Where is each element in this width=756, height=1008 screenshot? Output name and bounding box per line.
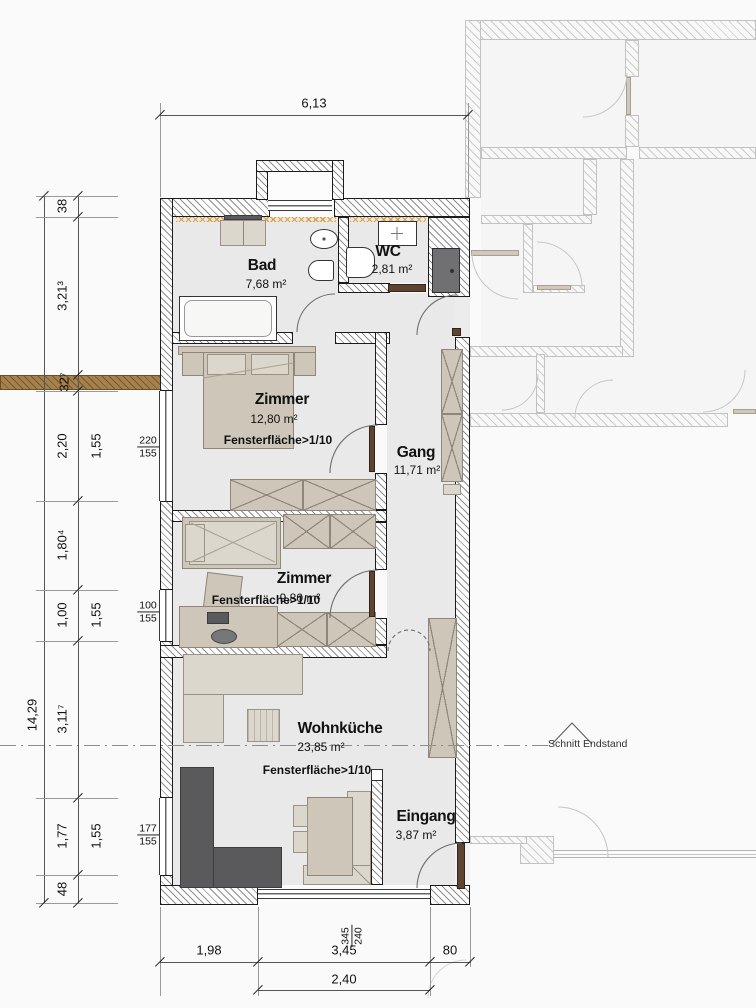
dim-left-total: 14,29	[25, 699, 40, 732]
wardrobe-zimmer1	[230, 479, 303, 511]
faded-corridor-floor	[470, 357, 728, 413]
faded-wall	[625, 40, 639, 77]
dim-line-bottom-2	[258, 990, 430, 991]
dim-left-321: 3,21³	[55, 281, 70, 311]
room-area-wohnkueche: 23,85 m²	[297, 740, 344, 754]
chair	[293, 805, 308, 827]
wall-top-right	[334, 198, 470, 217]
wardrobe-zimmer2-bottom	[327, 612, 376, 647]
bay-wall-top	[256, 160, 344, 172]
dim-top-width: 6,13	[301, 96, 326, 111]
faded-door-leaf	[471, 250, 519, 256]
wall-left-1	[160, 198, 173, 391]
faded-wall	[523, 224, 533, 293]
wall-gang-1	[375, 332, 387, 425]
pillow	[207, 354, 246, 375]
wall-gang-2	[375, 473, 387, 510]
room-area-wc: 2,81 m²	[372, 262, 413, 276]
window-sill: 155	[137, 613, 159, 625]
window-sill: 155	[137, 448, 159, 460]
faded-curve	[428, 960, 466, 998]
pillow	[251, 354, 289, 375]
dim-left-311: 3,11⁷	[55, 704, 70, 733]
room-label-eingang: Eingang	[396, 808, 455, 826]
extension-line	[430, 907, 431, 996]
dim-left-32: 32⁷	[57, 372, 72, 391]
faded-door-leaf	[626, 77, 631, 115]
faded-wall	[481, 215, 592, 224]
towel-rail	[224, 215, 262, 220]
faded-door-leaf	[537, 285, 571, 290]
chair	[293, 831, 308, 853]
room-note-zimmer1: Fensterfläche>1/10	[224, 433, 332, 447]
dim-left-100: 1,00	[55, 602, 70, 627]
dim-sill-2: 1,55	[89, 602, 104, 627]
dim-line-top	[160, 115, 469, 116]
entrance-door-leaf	[457, 843, 465, 889]
sofa-top	[183, 654, 303, 695]
wardrobe-zimmer2-top	[330, 514, 376, 549]
dim-bottom-345: 3,45	[331, 943, 356, 958]
wardrobe-zimmer2-top	[283, 514, 330, 549]
faded-sill	[470, 836, 527, 844]
dining-table	[307, 797, 353, 876]
faded-wall	[625, 115, 639, 147]
window-wohnkueche-south	[258, 889, 430, 899]
room-area-zimmer2: 9,80 m²	[280, 591, 321, 605]
room-label-wc: WC	[375, 243, 400, 261]
sofa-left	[183, 694, 224, 743]
window-width: 100	[137, 599, 159, 612]
faded-wall	[639, 147, 756, 159]
faded-window-band	[554, 850, 756, 858]
dim-bottom-198: 1,98	[196, 943, 221, 958]
gang-floor	[338, 293, 455, 332]
wardrobe-gang	[441, 414, 463, 482]
faded-room-floor	[481, 40, 756, 147]
dim-line-bottom	[160, 962, 471, 963]
basin-oval	[310, 229, 338, 249]
room-label-bad: Bad	[248, 257, 276, 275]
dim-left-38: 38	[55, 199, 70, 213]
wall-left-3	[160, 641, 173, 798]
installation-shaft	[432, 248, 460, 293]
tall-wardrobe	[428, 618, 457, 758]
bathtub-inner	[184, 300, 272, 337]
dim-sill-1: 1,55	[89, 433, 104, 458]
room-label-gang: Gang	[397, 444, 435, 462]
dim-left-180: 1,80⁴	[55, 530, 70, 561]
kitchen-counter-vertical	[180, 767, 214, 888]
partition-end-cap	[371, 769, 383, 781]
window-width: 177	[137, 822, 159, 835]
faded-wall	[470, 346, 623, 357]
zimmer2-door-leaf	[369, 571, 375, 617]
room-area-bad: 7,68 m²	[246, 277, 287, 291]
faded-wall	[470, 413, 728, 427]
dim-left-177: 1,77	[55, 823, 70, 848]
faded-wall	[620, 159, 634, 357]
room-note-wohnkueche: Fensterfläche>1/10	[263, 763, 371, 777]
room-area-gang: 11,71 m²	[394, 463, 440, 477]
toilet-wc	[346, 247, 375, 278]
dim-sill-3: 1,55	[89, 823, 104, 848]
wardrobe-zimmer2-bottom	[277, 612, 327, 647]
faded-wall	[481, 147, 627, 159]
floor-plan-canvas: Schnitt Endstand Bad 7,68 m² WC 2,81 m² …	[0, 0, 756, 1008]
window-tag-220-155: 220 155	[137, 434, 159, 459]
faded-wall	[583, 159, 597, 215]
wall-bottom-left	[160, 885, 258, 905]
window-width: 220	[137, 434, 159, 447]
nightstand-right	[294, 352, 316, 376]
dim-left-48: 48	[55, 882, 70, 896]
dim-left-220: 2,20	[55, 433, 70, 458]
wall-eingang-partition	[371, 780, 383, 885]
toilet-bad	[308, 260, 334, 281]
window-wohnkueche	[159, 798, 173, 875]
extension-line	[258, 907, 259, 996]
pillow-vertical	[185, 524, 205, 562]
extension-line	[468, 103, 469, 197]
dim-bottom-80: 80	[443, 943, 457, 958]
section-label: Schnitt Endstand	[548, 738, 627, 750]
gang-door-hinge	[452, 328, 461, 336]
window-zimmer1	[159, 391, 173, 501]
extension-line	[470, 907, 471, 967]
nightstand-left	[182, 352, 204, 376]
dim-bottom-240: 2,40	[331, 972, 356, 987]
wc-door-leaf	[388, 284, 426, 292]
wall-wc-bottom	[338, 283, 390, 293]
bay-wall-right	[332, 160, 344, 200]
room-area-zimmer1: 12,80 m²	[250, 412, 297, 426]
faded-wall	[465, 20, 756, 40]
window-zimmer2	[159, 590, 173, 641]
decor-oval	[211, 629, 237, 644]
dim-line-left-total	[44, 196, 45, 903]
wardrobe-zimmer1	[303, 479, 376, 511]
faded-door-leaf	[733, 409, 756, 414]
bay-window	[268, 200, 332, 211]
wall-gang-3	[375, 522, 387, 570]
wall-gang-4	[375, 618, 387, 645]
tv-block	[207, 612, 229, 624]
wardrobe-gang	[441, 349, 463, 414]
gang-bench	[443, 484, 461, 495]
side-table	[247, 709, 280, 742]
window-tag-100-155: 100 155	[137, 599, 159, 624]
washstand	[220, 220, 266, 246]
window-tag-177-155: 177 155	[137, 822, 159, 847]
faded-wall	[536, 354, 545, 413]
room-label-wohnkueche: Wohnküche	[298, 720, 383, 738]
extension-line	[160, 103, 161, 197]
kitchen-counter-horizontal	[213, 847, 282, 888]
room-label-zimmer1: Zimmer	[255, 391, 309, 409]
room-area-eingang: 3,87 m²	[396, 828, 437, 842]
zimmer1-door-leaf	[369, 426, 375, 472]
room-label-zimmer2: Zimmer	[277, 570, 331, 588]
extension-line	[160, 907, 161, 996]
window-sill: 155	[137, 836, 159, 848]
section-line	[0, 745, 548, 746]
bay-niche	[268, 172, 332, 200]
